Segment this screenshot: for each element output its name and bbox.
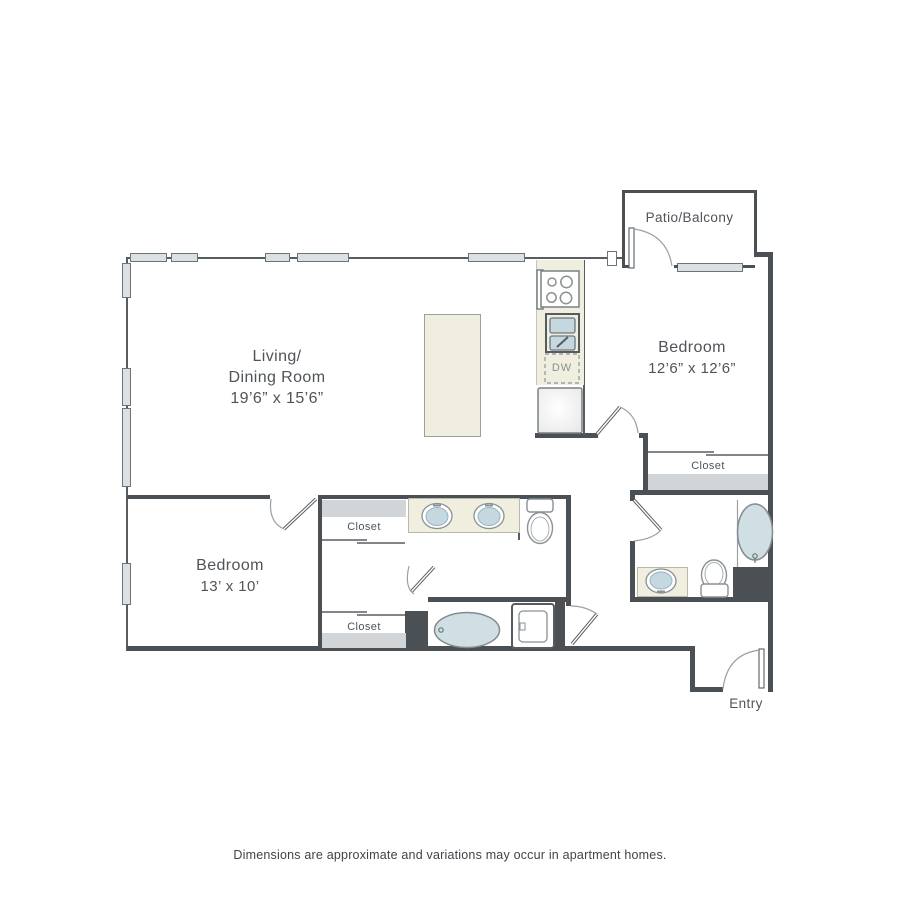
wall-block bbox=[405, 611, 428, 648]
window bbox=[297, 253, 349, 262]
wall-segment bbox=[127, 495, 270, 499]
dishwasher-label: DW bbox=[545, 362, 579, 374]
window bbox=[130, 253, 167, 262]
kitchen-island bbox=[424, 314, 481, 437]
patio-wall bbox=[622, 190, 757, 193]
bedroom-right-label: Bedroom 12’6” x 12’6” bbox=[602, 337, 782, 379]
wall-segment bbox=[630, 541, 635, 602]
window bbox=[122, 408, 131, 487]
bedroom-left-dims: 13’ x 10’ bbox=[140, 576, 320, 597]
patio-wall bbox=[743, 265, 755, 268]
living-room-line2: Dining Room bbox=[157, 367, 397, 388]
window bbox=[122, 263, 131, 298]
wall-segment bbox=[630, 490, 773, 495]
living-room-dims: 19’6” x 15’6” bbox=[157, 388, 397, 409]
fixtures-overlay bbox=[0, 0, 900, 900]
floor-plan-canvas: Living/ Dining Room 19’6” x 15’6” Bedroo… bbox=[0, 0, 900, 900]
closet-shelf bbox=[648, 474, 768, 490]
bedroom-left-label: Bedroom 13’ x 10’ bbox=[140, 555, 320, 597]
bedroom-left-name: Bedroom bbox=[140, 555, 320, 576]
closet-lower-label: Closet bbox=[322, 621, 406, 634]
wall-segment bbox=[555, 600, 565, 646]
bathtub-icon bbox=[435, 613, 500, 648]
bathroom-vanity bbox=[637, 567, 688, 597]
bathroom-vanity bbox=[408, 498, 520, 533]
door-bedroom-left bbox=[271, 499, 316, 529]
wall-segment bbox=[630, 493, 635, 501]
window bbox=[122, 368, 131, 406]
patio-wall bbox=[674, 265, 678, 268]
window bbox=[468, 253, 525, 262]
wall-block bbox=[733, 567, 768, 597]
closet-shelf bbox=[322, 500, 406, 517]
wall-segment bbox=[428, 597, 571, 602]
window bbox=[677, 263, 743, 272]
closet-bedroom-right-label: Closet bbox=[648, 460, 768, 473]
door-main-bath bbox=[407, 566, 434, 594]
toilet-icon bbox=[701, 560, 728, 597]
wall-segment bbox=[566, 495, 571, 606]
wall-segment bbox=[535, 433, 598, 438]
door-patio bbox=[629, 228, 672, 268]
window bbox=[122, 563, 131, 605]
disclaimer-text: Dimensions are approximate and variation… bbox=[0, 848, 900, 862]
door-bedroom-right bbox=[597, 407, 638, 434]
patio-label: Patio/Balcony bbox=[622, 210, 757, 225]
living-room-line1: Living/ bbox=[157, 346, 397, 367]
refrigerator-icon bbox=[538, 388, 582, 433]
closet-shelf bbox=[322, 633, 406, 648]
wall-segment bbox=[127, 257, 622, 259]
bedroom-right-name: Bedroom bbox=[602, 337, 782, 358]
patio-wall bbox=[622, 190, 625, 268]
toilet-icon bbox=[527, 499, 553, 544]
wall-segment bbox=[768, 255, 773, 692]
patio-wall bbox=[622, 265, 633, 268]
closet-upper-label: Closet bbox=[322, 521, 406, 534]
door-entry bbox=[723, 649, 764, 689]
door-second-bath bbox=[634, 500, 661, 541]
living-room-label: Living/ Dining Room 19’6” x 15’6” bbox=[157, 346, 397, 409]
door-shower bbox=[571, 606, 597, 644]
washer-icon bbox=[512, 604, 554, 648]
wall-segment bbox=[690, 646, 695, 692]
entry-label: Entry bbox=[706, 696, 786, 711]
wall-segment bbox=[695, 687, 723, 692]
window bbox=[171, 253, 198, 262]
bedroom-right-dims: 12’6” x 12’6” bbox=[602, 358, 782, 379]
wall-segment bbox=[630, 597, 773, 602]
window bbox=[265, 253, 290, 262]
door-jamb bbox=[607, 251, 617, 266]
